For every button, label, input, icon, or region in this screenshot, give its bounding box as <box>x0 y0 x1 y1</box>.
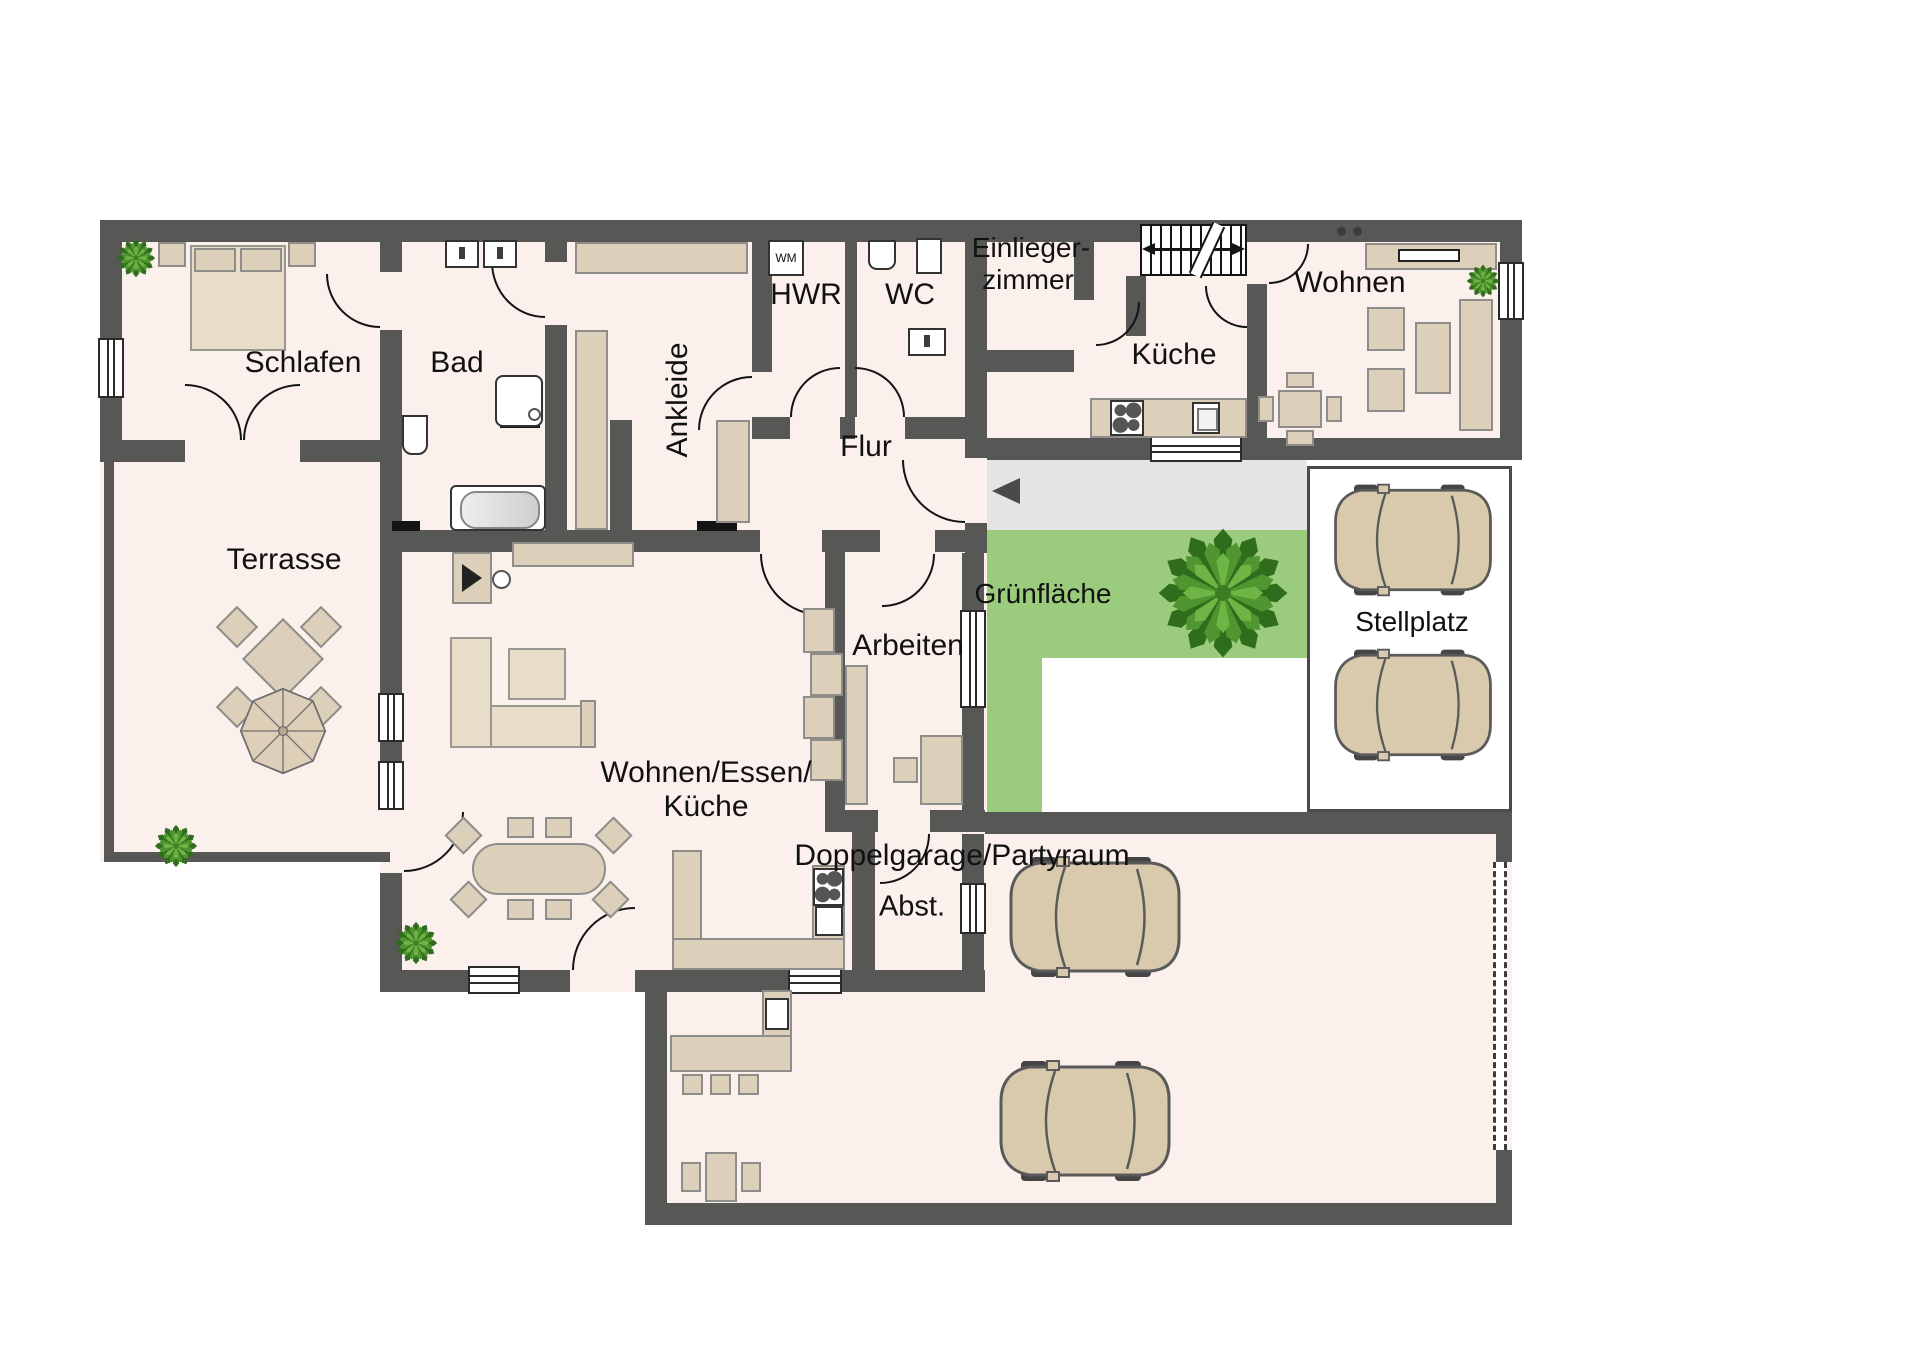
dining-table-main <box>472 843 606 895</box>
window-schlafen <box>98 338 124 398</box>
wall-arbeiten-bottom-2 <box>930 810 985 832</box>
tv-knob <box>492 570 511 589</box>
bar-counter-horizontal <box>670 1035 792 1072</box>
room-label-kueche-apartment: Küche <box>1131 338 1216 372</box>
dining-chair-apartment-top <box>1286 372 1314 388</box>
wall-hall-stub <box>610 420 632 530</box>
wall-dot-1 <box>1337 227 1346 236</box>
plant-wohnen-apartment <box>1466 264 1500 298</box>
room-label-wohnen-essen-2: Küche <box>663 790 748 824</box>
plant-living <box>394 921 438 965</box>
dining-chair-apartment-left <box>1258 396 1274 422</box>
window-living-south <box>468 966 520 994</box>
party-chair-left <box>681 1162 701 1192</box>
room-label-bad: Bad <box>430 346 483 380</box>
party-table <box>705 1152 737 1202</box>
wall-top <box>100 220 1522 242</box>
kitchen-counter-bottom <box>672 938 845 970</box>
oven-main <box>815 906 843 936</box>
tall-cabinet-2 <box>810 653 843 696</box>
wall-schlafen-bottom-l <box>100 440 185 462</box>
stove-main <box>813 868 844 906</box>
wall-garage-east-1 <box>1496 812 1512 862</box>
bed-pillow-left <box>194 248 236 272</box>
bathtub-basin <box>460 491 540 529</box>
wall-east-apartment-2 <box>1500 318 1522 438</box>
sofa-vertical <box>450 637 492 748</box>
sofa-arm <box>580 700 596 748</box>
wall-schlafen-east-2 <box>380 330 402 440</box>
washing-machine-label: WM <box>775 251 796 265</box>
wall-east-upper-2 <box>965 523 987 553</box>
faucet-bad-1 <box>459 247 465 259</box>
room-label-terrasse: Terrasse <box>226 543 341 577</box>
room-label-schlafen: Schlafen <box>245 346 362 380</box>
chair-arbeiten <box>893 757 918 783</box>
window-living-2 <box>378 761 404 810</box>
wall-apartment-bottom <box>987 438 1522 460</box>
nightstand-left <box>158 242 186 267</box>
plant-schlafen <box>116 238 156 278</box>
nightstand-right <box>288 242 316 267</box>
wall-garage-top <box>985 812 1512 834</box>
car-garage-2 <box>995 1056 1175 1186</box>
floor-plan: WM <box>0 0 1920 1357</box>
walkway <box>987 460 1307 530</box>
dining-chair-1 <box>507 817 534 838</box>
bar-stool-3 <box>738 1074 759 1095</box>
faucet-bad-2 <box>497 247 503 259</box>
cabinet-arbeiten <box>845 665 868 805</box>
room-label-arbeiten: Arbeiten <box>852 629 964 663</box>
room-label-wohnen-apartment: Wohnen <box>1294 266 1405 300</box>
wall-arbeiten-top-2 <box>935 530 965 552</box>
sideboard-main <box>512 542 634 567</box>
staircase-arrow-right <box>1232 243 1245 255</box>
wall-arbeiten-bottom-1 <box>845 810 878 832</box>
faucet-wc <box>924 335 930 347</box>
wall-garage-bottom <box>645 1203 1512 1225</box>
car-stellplatz-2 <box>1330 648 1496 762</box>
wardrobe-left <box>575 330 608 530</box>
dining-table-apartment <box>1278 390 1322 428</box>
toilet-bad <box>402 415 428 455</box>
wall-living-west-1 <box>380 462 402 695</box>
wall-terrace-south <box>104 852 390 862</box>
wall-east-lower-2 <box>962 706 984 812</box>
wardrobe-top <box>575 242 748 274</box>
bed-pillow-right <box>240 248 282 272</box>
room-label-hwr: HWR <box>770 278 842 312</box>
sofa-apartment <box>1459 299 1493 431</box>
dining-chair-apartment-right <box>1326 396 1342 422</box>
tall-cabinet-4 <box>810 739 843 781</box>
room-label-doppelgarage: Doppelgarage/Partyraum <box>794 839 1129 873</box>
wardrobe-right <box>716 420 750 523</box>
tall-cabinet-3 <box>803 696 835 739</box>
staircase-center-line <box>1146 248 1241 251</box>
tree <box>1156 526 1290 660</box>
car-stellplatz-1 <box>1330 483 1496 597</box>
wall-living-west-2 <box>380 740 402 763</box>
desk-arbeiten <box>920 735 963 805</box>
dining-chair-3 <box>507 899 534 920</box>
dining-chair-apartment-bottom <box>1286 430 1314 446</box>
room-label-einlieger-2: zimmer <box>982 264 1074 296</box>
room-label-stellplatz: Stellplatz <box>1355 606 1469 638</box>
dining-chair-4 <box>545 899 572 920</box>
stove-apartment <box>1110 400 1144 436</box>
staircase-arrow-left <box>1142 243 1155 255</box>
coffee-table-main <box>508 648 566 700</box>
bar-stool-2 <box>710 1074 731 1095</box>
party-chair-right <box>741 1162 761 1192</box>
terrace-umbrella <box>239 687 327 775</box>
wall-abst-bottom <box>875 970 985 992</box>
bar-stool-1 <box>682 1074 703 1095</box>
coffee-table-apartment <box>1415 322 1451 394</box>
wall-dot-2 <box>1353 227 1362 236</box>
tv-apartment <box>1398 249 1460 262</box>
window-kueche-apartment <box>1150 436 1242 462</box>
armchair-apartment-2 <box>1367 368 1405 412</box>
room-label-einlieger-1: Einlieger- <box>972 232 1090 264</box>
window-wohnen-apartment <box>1498 262 1524 320</box>
room-label-wohnen-essen-1: Wohnen/Essen/ <box>600 756 811 790</box>
wall-schlafen-bottom-r <box>300 440 402 462</box>
tv-main <box>462 564 482 592</box>
wall-bad-east-1 <box>545 242 567 262</box>
shower-drain <box>528 408 541 421</box>
wall-schlafen-east-1 <box>380 242 402 272</box>
wall-bad-east-2 <box>545 325 567 552</box>
cistern-wc <box>916 238 942 274</box>
sink-basin-apartment <box>1197 408 1218 431</box>
room-label-ankleide: Ankleide <box>661 342 695 457</box>
entrance-arrow <box>992 478 1020 504</box>
threshold-bar-1 <box>392 521 420 531</box>
window-abst <box>960 883 986 934</box>
serving-hatch <box>788 966 842 994</box>
kitchen-counter-left <box>672 850 702 940</box>
wall-flur-bottom-2 <box>822 530 845 552</box>
armchair-apartment-1 <box>1367 307 1405 351</box>
wall-hwr-bottom-1 <box>752 417 790 439</box>
green-area-strip <box>987 658 1042 812</box>
tall-cabinet-1 <box>803 608 835 653</box>
wall-flur-bottom-1 <box>633 530 760 552</box>
wall-arbeiten-top-1 <box>845 530 880 552</box>
toilet-wc <box>868 240 896 270</box>
room-label-abst: Abst. <box>879 891 945 924</box>
wall-garage-east-2 <box>1496 1150 1512 1225</box>
room-label-wc: WC <box>885 278 935 312</box>
dining-chair-2 <box>545 817 572 838</box>
plant-terrace <box>154 824 198 868</box>
wall-einlieger-bottom <box>987 350 1074 372</box>
sofa-horizontal <box>490 705 594 748</box>
wall-garage-west <box>645 970 667 1225</box>
window-living-1 <box>378 693 404 742</box>
wall-terrace-west <box>104 462 114 862</box>
room-label-gruenflaeche: Grünfläche <box>975 578 1112 610</box>
bar-sink <box>765 998 789 1030</box>
window-arbeiten <box>960 610 986 708</box>
garage-door-dashed <box>1493 862 1507 1150</box>
room-label-flur: Flur <box>840 430 892 464</box>
